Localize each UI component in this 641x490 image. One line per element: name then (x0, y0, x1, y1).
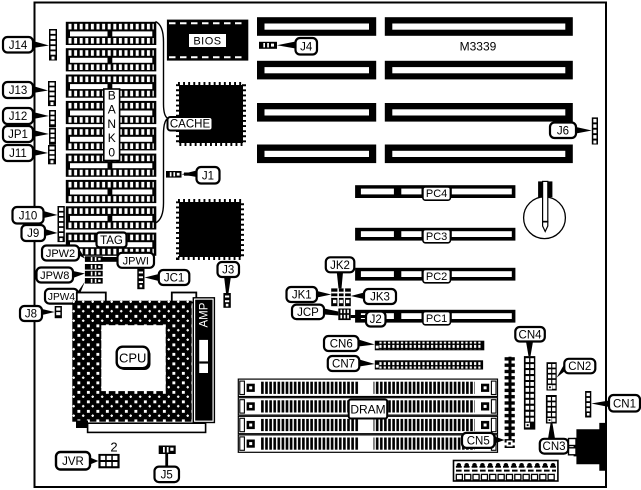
svg-text:JK3: JK3 (370, 292, 390, 304)
svg-text:DRAM: DRAM (350, 403, 385, 417)
svg-text:CN3: CN3 (543, 441, 566, 453)
svg-text:JC1: JC1 (164, 273, 184, 285)
svg-text:JVR: JVR (62, 456, 84, 468)
svg-text:J11: J11 (9, 148, 27, 160)
svg-text:A: A (108, 103, 116, 117)
svg-text:B: B (108, 89, 116, 103)
svg-text:JCP: JCP (297, 307, 319, 319)
svg-text:J10: J10 (19, 210, 38, 222)
svg-text:PC4: PC4 (426, 188, 447, 200)
svg-text:JK1: JK1 (292, 290, 312, 302)
svg-text:JPWI: JPWI (123, 255, 149, 267)
svg-text:JPW2: JPW2 (46, 248, 75, 260)
svg-text:TAG: TAG (100, 235, 123, 247)
svg-text:J12: J12 (9, 111, 28, 123)
svg-text:N: N (107, 117, 116, 131)
svg-text:K: K (108, 131, 116, 145)
svg-text:M3339: M3339 (460, 40, 497, 54)
svg-text:0: 0 (108, 145, 115, 159)
svg-text:PC2: PC2 (426, 271, 447, 283)
svg-text:CN4: CN4 (519, 329, 543, 341)
svg-text:CPU: CPU (119, 350, 146, 365)
svg-text:JPW8: JPW8 (40, 270, 69, 282)
svg-text:J4: J4 (300, 41, 313, 53)
svg-text:JK2: JK2 (330, 260, 350, 272)
svg-text:2: 2 (110, 440, 117, 455)
svg-text:J2: J2 (370, 314, 382, 326)
svg-text:J5: J5 (161, 469, 173, 481)
svg-text:JPW4: JPW4 (48, 292, 76, 303)
svg-text:J3: J3 (222, 265, 234, 277)
svg-text:BIOS: BIOS (193, 36, 221, 48)
svg-text:J14: J14 (9, 40, 28, 52)
svg-text:CACHE: CACHE (170, 118, 211, 130)
svg-text:PC3: PC3 (426, 231, 447, 243)
svg-text:J9: J9 (27, 228, 39, 240)
svg-text:AMP: AMP (199, 302, 211, 327)
svg-text:J6: J6 (557, 125, 569, 137)
svg-text:J8: J8 (25, 309, 37, 321)
svg-text:J1: J1 (202, 170, 214, 182)
svg-text:JP1: JP1 (8, 129, 28, 141)
svg-text:CN7: CN7 (332, 359, 355, 371)
svg-text:CN1: CN1 (613, 398, 636, 410)
svg-text:CN6: CN6 (330, 339, 353, 351)
svg-text:CN2: CN2 (568, 361, 591, 373)
svg-text:CN5: CN5 (467, 435, 490, 447)
svg-text:PC1: PC1 (426, 313, 447, 325)
svg-text:J13: J13 (9, 85, 28, 97)
